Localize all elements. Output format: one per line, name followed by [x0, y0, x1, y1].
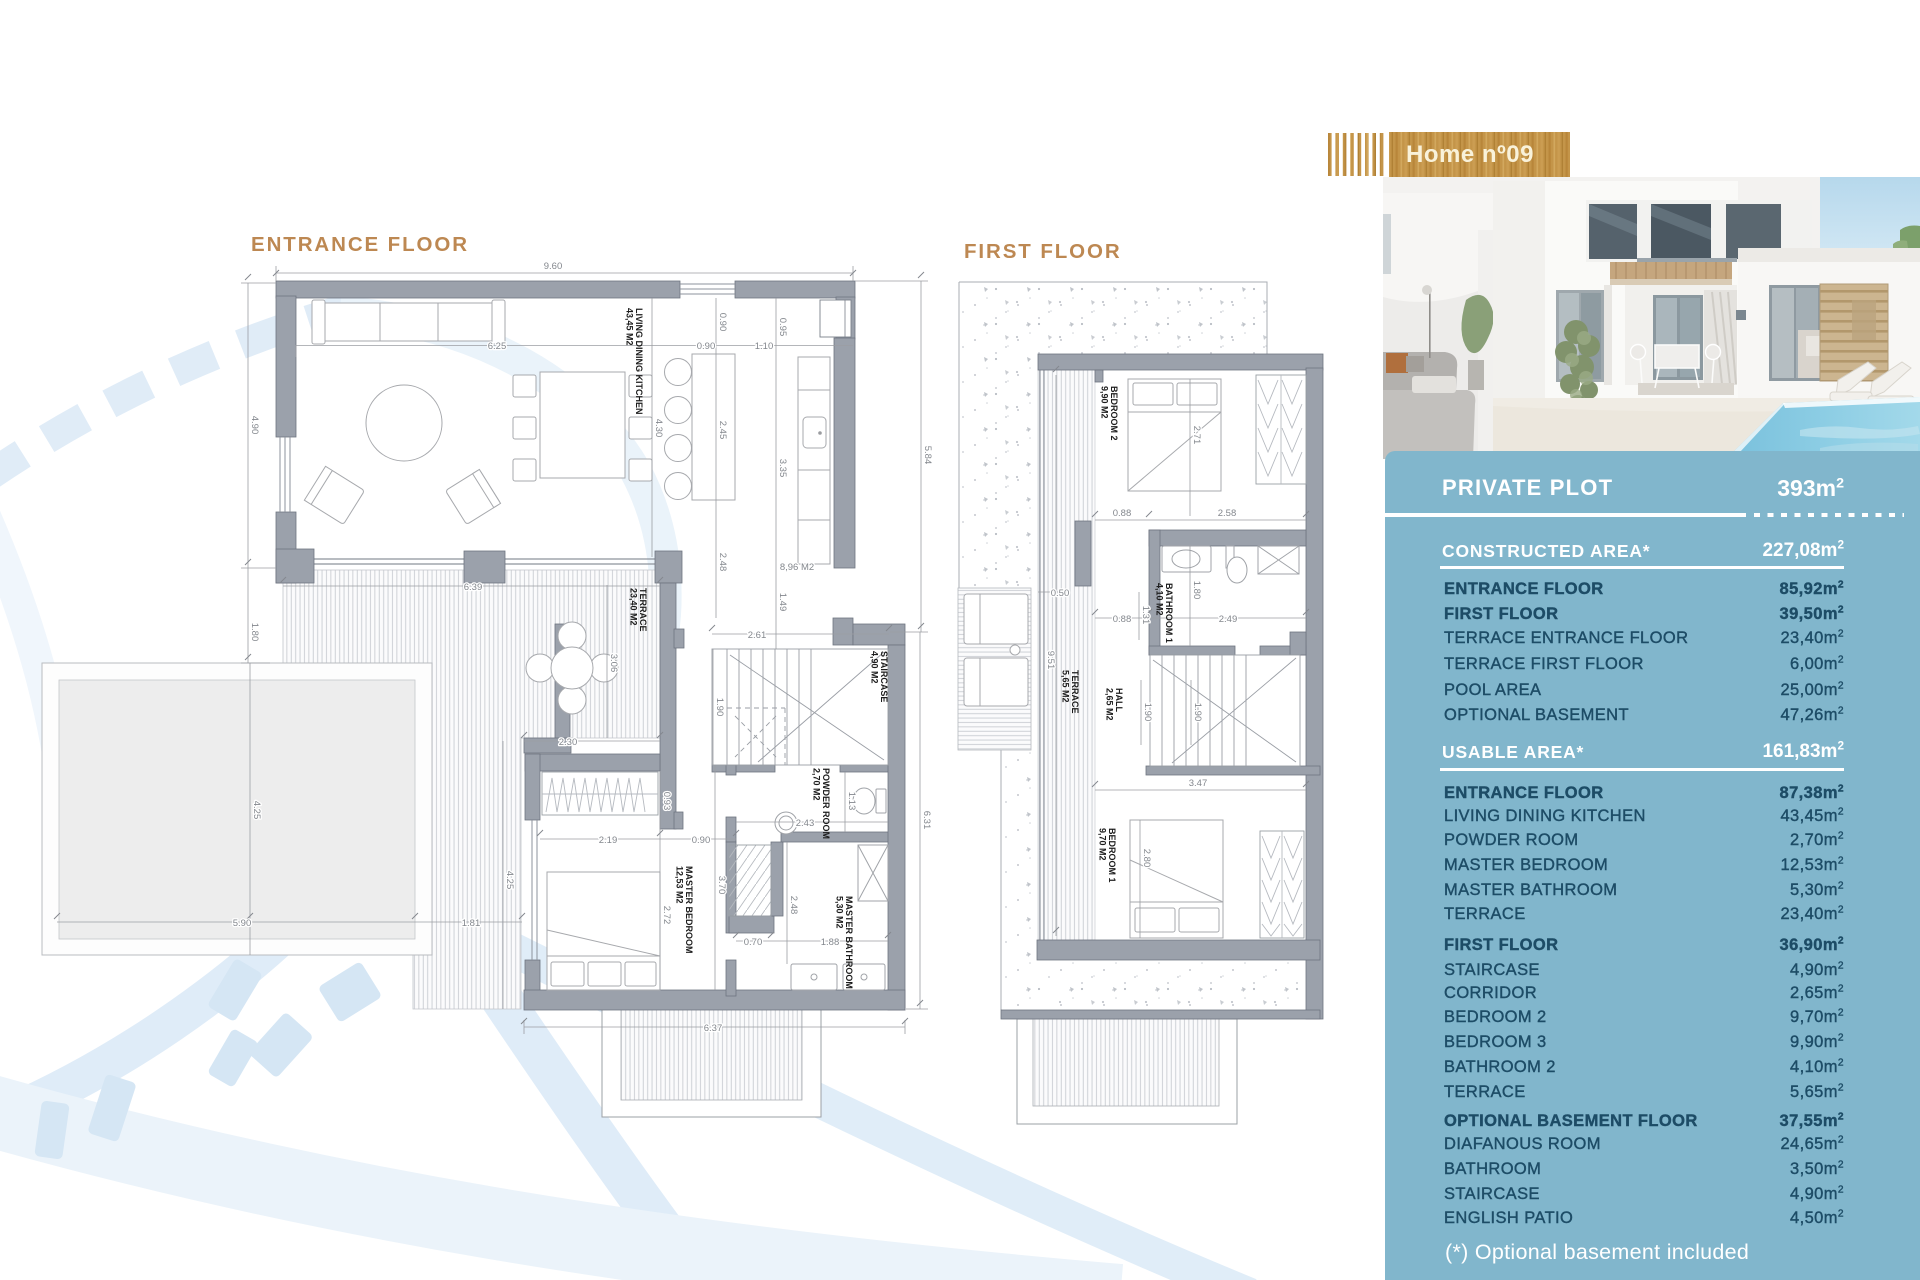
svg-text:Home nº09: Home nº09 [1406, 141, 1534, 168]
